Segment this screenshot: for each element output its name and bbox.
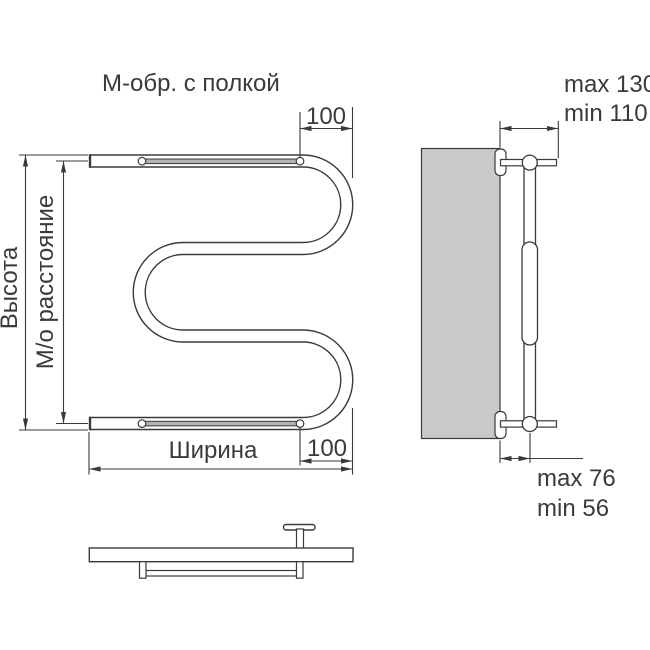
shelf-pin-bottom-left bbox=[138, 420, 146, 428]
shelf-rod-bottom-view bbox=[143, 571, 300, 577]
shelf-rod-bottom bbox=[145, 421, 297, 426]
width-label: Ширина bbox=[169, 437, 258, 464]
dim-shelf-offset-bottom: 100 bbox=[300, 428, 353, 466]
shelf-pin-top-right bbox=[296, 157, 304, 165]
shelf-offset-bottom-value: 100 bbox=[307, 435, 347, 462]
m-tube-outline bbox=[89, 161, 347, 424]
shelf-pin-bottom-right bbox=[296, 420, 304, 428]
shelf-offset-top-value: 100 bbox=[306, 103, 346, 130]
axis-distance-max: max 76 bbox=[537, 465, 616, 492]
wall bbox=[422, 149, 501, 439]
height-label: Высота bbox=[0, 246, 23, 329]
dim-axis-distance: max 76 min 56 bbox=[500, 433, 616, 522]
wall-flange-stem bbox=[297, 529, 304, 549]
wall-distance-min: min 110 bbox=[564, 100, 648, 127]
tube-top-bend-profile bbox=[522, 155, 537, 170]
axial-distance-label: М/о расстояние bbox=[32, 195, 59, 369]
axis-distance-min: min 56 bbox=[537, 495, 609, 522]
drawing-page: М-обр. с полкой Высота М/о расстояние bbox=[0, 0, 650, 650]
shelf-pin-top-left bbox=[138, 157, 146, 165]
shelf-post-left bbox=[140, 562, 147, 579]
tube-middle-bend-profile bbox=[522, 242, 538, 345]
dim-wall-distance: max 130 min 110 bbox=[500, 71, 650, 159]
drawing-title: М-обр. с полкой bbox=[102, 70, 280, 97]
wall-distance-max: max 130 bbox=[564, 71, 650, 98]
shelf-rod-top bbox=[145, 159, 297, 164]
dim-axial-distance: М/о расстояние bbox=[32, 161, 88, 424]
side-view bbox=[422, 149, 557, 439]
shelf-post-right bbox=[297, 562, 304, 579]
front-view bbox=[89, 154, 347, 430]
tube-bottom-bend-profile bbox=[522, 417, 537, 432]
bottom-view bbox=[89, 525, 353, 579]
m-tube-inner bbox=[89, 161, 347, 424]
tube-bottom-profile bbox=[89, 548, 353, 562]
technical-drawing: М-обр. с полкой Высота М/о расстояние bbox=[0, 0, 650, 650]
